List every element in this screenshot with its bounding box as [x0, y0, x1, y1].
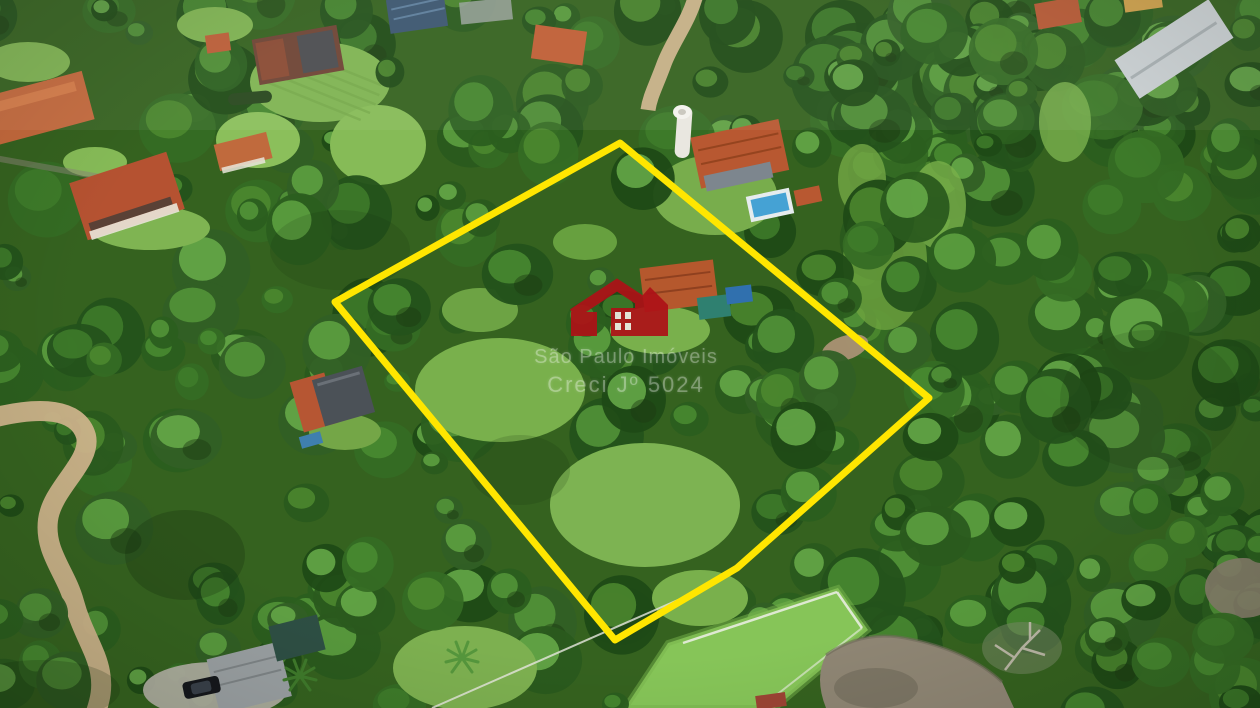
property-boundary-overlay	[0, 0, 1260, 708]
aerial-photo: São Paulo Imóveis Creci Jº 5024	[0, 0, 1260, 708]
boundary-polygon	[335, 143, 929, 640]
